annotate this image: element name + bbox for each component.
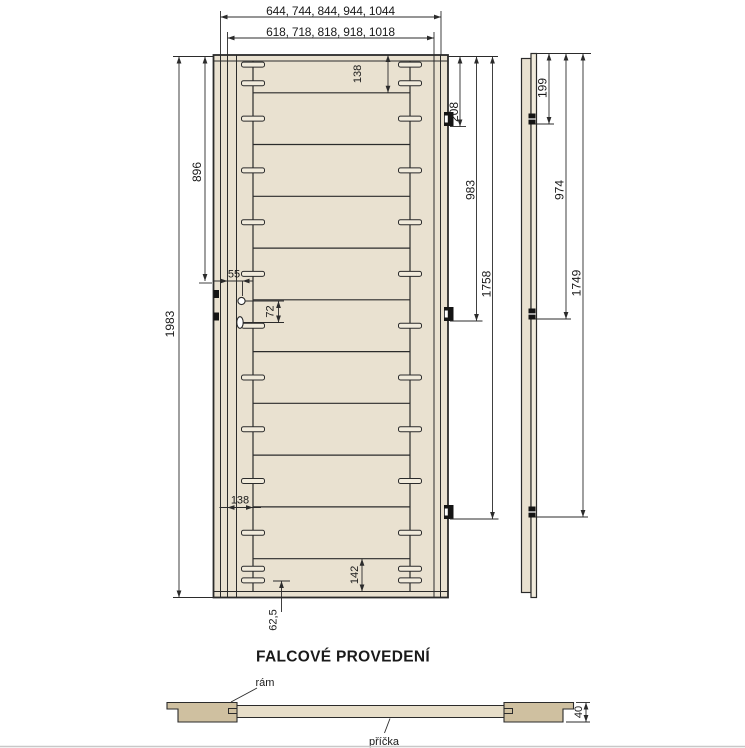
dim-label-outer-widths: 644, 744, 844, 944, 1044 bbox=[266, 4, 395, 18]
tenon-mark bbox=[242, 375, 265, 380]
dim-label-handle-to-keyhole: 72 bbox=[264, 305, 276, 317]
tenon-mark bbox=[242, 427, 265, 432]
label-frame: rám bbox=[256, 677, 275, 689]
tenon-mark bbox=[242, 81, 265, 86]
side-view-door bbox=[522, 54, 537, 598]
front-view-door bbox=[214, 55, 454, 598]
dim-label-front-hinge-0: 208 bbox=[447, 102, 461, 122]
leader-line bbox=[385, 719, 391, 734]
dim-label-top-rail: 138 bbox=[352, 65, 364, 83]
dim-arrow bbox=[177, 57, 182, 64]
dim-label-side-hinge-0: 199 bbox=[536, 78, 550, 98]
tenon-mark bbox=[242, 530, 265, 535]
tenon-mark bbox=[399, 566, 422, 571]
dim-label-leaf-widths: 618, 718, 818, 918, 1018 bbox=[266, 25, 395, 39]
dim-arrow bbox=[490, 57, 495, 64]
dim-arrow bbox=[427, 36, 434, 41]
tenon-mark bbox=[242, 62, 265, 67]
handle-hole bbox=[238, 297, 245, 304]
tenon-mark bbox=[399, 479, 422, 484]
dim-arrow bbox=[474, 57, 479, 64]
dim-label-front-hinge-2: 1758 bbox=[480, 270, 494, 297]
section-frame-left bbox=[167, 703, 237, 723]
tenon-mark bbox=[399, 578, 422, 583]
tenon-mark bbox=[399, 323, 422, 328]
dim-arrow bbox=[564, 312, 569, 319]
dim-arrow bbox=[434, 15, 441, 20]
dim-arrow bbox=[474, 314, 479, 321]
tenon-mark bbox=[399, 116, 422, 121]
dim-label-thickness: 40 bbox=[573, 706, 585, 718]
dim-label-handle-height: 896 bbox=[190, 162, 204, 182]
tenon-mark bbox=[242, 168, 265, 173]
side-hinge-dimensions: 1999741749 bbox=[535, 54, 591, 518]
tenon-mark bbox=[399, 427, 422, 432]
tenon-mark bbox=[242, 578, 265, 583]
dim-label-front-hinge-1: 983 bbox=[464, 180, 478, 200]
dim-arrow bbox=[203, 274, 208, 281]
dim-arrow bbox=[228, 36, 235, 41]
hinge-mark-slot bbox=[445, 509, 448, 516]
leader-line bbox=[231, 688, 257, 702]
tenon-mark bbox=[242, 479, 265, 484]
tenon-mark bbox=[399, 375, 422, 380]
tenon-mark bbox=[399, 81, 422, 86]
top-width-dimensions: 644, 744, 844, 944, 1044618, 718, 818, 9… bbox=[221, 4, 442, 55]
tenon-mark bbox=[399, 271, 422, 276]
caption: FALCOVÉ PROVEDENÍ bbox=[256, 648, 430, 665]
lock-plate-mark bbox=[214, 290, 220, 298]
dim-arrow bbox=[490, 512, 495, 519]
dim-label-height: 1983 bbox=[163, 310, 177, 337]
dim-arrow bbox=[458, 57, 463, 64]
door-technical-drawing: 644, 744, 844, 944, 1044618, 718, 818, 9… bbox=[0, 0, 745, 748]
section-frame-right bbox=[504, 703, 574, 723]
tenon-mark bbox=[242, 323, 265, 328]
dim-label-side-hinge-2: 1749 bbox=[570, 269, 584, 296]
dim-arrow bbox=[177, 591, 182, 598]
section-view: 40rámpříčka bbox=[167, 677, 590, 748]
keyhole bbox=[237, 317, 243, 329]
dim-arrow bbox=[203, 57, 208, 64]
dim-label-bottom-rail: 142 bbox=[349, 566, 361, 584]
dim-arrow bbox=[547, 54, 552, 61]
tenon-mark bbox=[242, 566, 265, 571]
dim-label-stile-offset: 138 bbox=[231, 494, 249, 506]
section-partition bbox=[237, 706, 504, 718]
tenon-mark bbox=[399, 220, 422, 225]
tenon-mark bbox=[242, 220, 265, 225]
dim-arrow bbox=[564, 54, 569, 61]
dim-arrow bbox=[581, 510, 586, 517]
dim-arrow bbox=[581, 54, 586, 61]
tenon-mark bbox=[399, 62, 422, 67]
drawing-caption: FALCOVÉ PROVEDENÍ bbox=[256, 648, 430, 665]
technical-drawing-page: 644, 744, 844, 944, 1044618, 718, 818, 9… bbox=[0, 0, 745, 748]
tenon-mark bbox=[242, 271, 265, 276]
front-hinge-dimensions: 2089831758 bbox=[447, 57, 498, 520]
dim-arrow bbox=[221, 15, 228, 20]
lock-plate-mark bbox=[214, 313, 220, 321]
tenon-mark bbox=[399, 530, 422, 535]
dim-label-side-hinge-1: 974 bbox=[553, 180, 567, 200]
hinge-mark-slot bbox=[445, 311, 448, 318]
dim-arrow bbox=[547, 117, 552, 124]
tenon-mark bbox=[242, 116, 265, 121]
dim-label-bottom-dowel: 62,5 bbox=[267, 609, 279, 630]
tenon-mark bbox=[399, 168, 422, 173]
dim-label-handle-offset: 55 bbox=[228, 268, 240, 280]
